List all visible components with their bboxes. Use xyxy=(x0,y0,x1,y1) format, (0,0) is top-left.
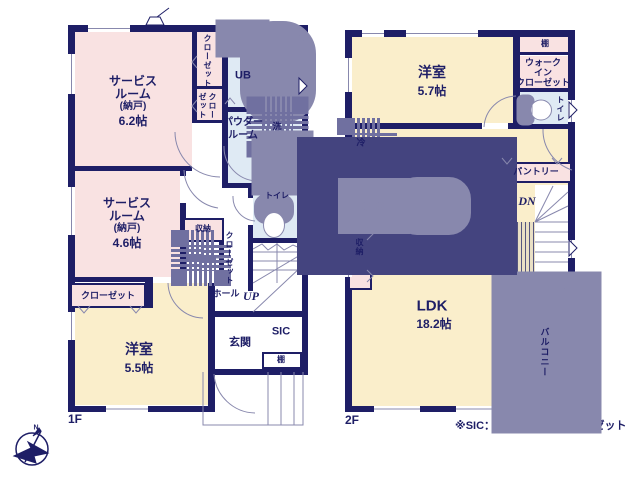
floorplan-canvas: ME Group 1F 2F ※SIC：シューズインクローゼット サービスルーム… xyxy=(0,0,640,480)
toilet-icon-1f xyxy=(264,213,285,238)
door-arc xyxy=(184,170,218,208)
label-balcony: バルコニー xyxy=(540,327,549,377)
stairs-1f-lines xyxy=(253,243,302,312)
roof-vent-icon xyxy=(146,17,164,25)
label-ub: UB xyxy=(235,71,251,82)
label-service-room1-size: 6.2帖 xyxy=(119,115,148,127)
label-compass-n: N xyxy=(33,425,38,432)
label-toilet-1f: トイレ xyxy=(265,192,289,200)
label-wic: ウォーク xyxy=(525,59,561,68)
label-youshitsu-55-size: 5.5帖 xyxy=(125,362,154,374)
label-service-room2: (納戸) xyxy=(114,224,141,234)
label-service-room1: ルーム xyxy=(115,88,151,100)
label-shelf-2f: 棚 xyxy=(541,40,549,48)
label-ldk-size: 18.2帖 xyxy=(416,318,451,330)
label-service-room2: サービス xyxy=(103,197,151,209)
door-arc xyxy=(233,196,255,221)
label-powder-room: パウダー xyxy=(223,118,263,128)
label-youshitsu-55: 洋室 xyxy=(125,342,153,356)
label-shelf-1f: 棚 xyxy=(277,356,285,364)
label-ldk: LDK xyxy=(417,299,448,314)
hanger-tick xyxy=(78,306,142,313)
label-service-room1: サービス xyxy=(109,75,157,87)
label-service-room2: ルーム xyxy=(109,210,145,222)
toilet-icon-2f xyxy=(521,99,530,121)
label-closet1: クローゼット xyxy=(203,34,211,88)
label-wic: クローゼット xyxy=(516,79,570,88)
label-pantry: パントリー xyxy=(513,168,558,177)
closet-dash-1f xyxy=(186,245,216,271)
label-washer: 洗 xyxy=(272,123,281,132)
toilet-icon-2f xyxy=(531,100,552,120)
label-storage-2f: 収納 xyxy=(355,238,363,256)
label-hall: ホール xyxy=(212,290,239,299)
label-stairs-dn: DN xyxy=(518,195,535,207)
label-closet-strip: クローゼット xyxy=(81,292,135,301)
label-closet2: クロー xyxy=(208,93,216,120)
label-storage-1f: 収納 xyxy=(195,225,211,233)
label-fridge: 冷 xyxy=(356,139,365,148)
vanity-tap-icon xyxy=(278,147,286,152)
label-youshitsu-57: 洋室 xyxy=(418,65,446,79)
stairs-2f-winders xyxy=(535,186,568,222)
roof-vent-icon xyxy=(157,8,169,17)
porch-outline xyxy=(203,372,303,425)
label-toilet-2f: トイレ xyxy=(556,96,564,123)
label-wic: イン xyxy=(534,69,552,78)
sink-faucet-icon xyxy=(428,212,434,218)
louver-triangle xyxy=(569,102,577,118)
door-arc xyxy=(175,132,220,177)
label-closet2: ゼット xyxy=(198,93,206,120)
label-stairs-up: UP xyxy=(243,290,259,302)
label-youshitsu-57-size: 5.7帖 xyxy=(418,85,447,97)
hanger-tick xyxy=(192,56,197,112)
label-closet-hall: クローゼット xyxy=(225,231,233,285)
label-service-room1: (納戸) xyxy=(120,102,147,112)
door-arc xyxy=(214,374,255,413)
door-tick xyxy=(225,98,235,104)
bath-counter-icon xyxy=(229,33,256,44)
label-genkan: 玄関 xyxy=(229,338,251,349)
louver-triangle xyxy=(569,240,577,256)
door-arc xyxy=(484,96,516,127)
label-service-room2-size: 4.6帖 xyxy=(113,237,142,249)
door-arc xyxy=(168,283,203,318)
label-powder-room: ルーム xyxy=(228,131,258,141)
label-sic: SIC xyxy=(272,327,290,338)
